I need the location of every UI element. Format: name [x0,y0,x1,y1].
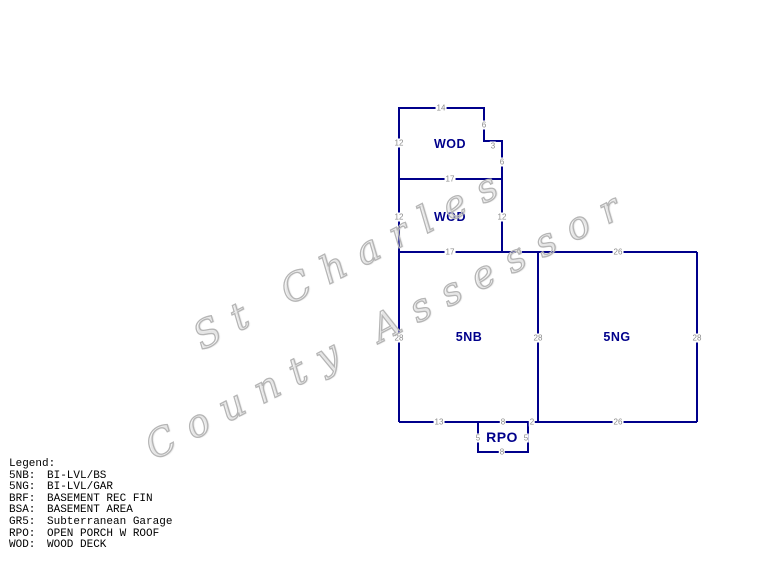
dim-main-bottom-mid: 2 [529,418,535,427]
dim-rpo-bottom: 8 [499,448,505,457]
legend-title-row: Legend: [9,459,172,471]
legend-desc: WOOD DECK [47,540,106,552]
dim-main-divider: 28 [533,334,544,343]
dim-wod1-bottom: 17 [445,175,456,184]
dim-main-top-left: 17 [445,248,456,257]
legend: Legend: 5NB: BI-LVL/BS 5NG: BI-LVL/GAR B… [9,459,172,552]
outline-path [399,108,697,452]
dim-main-bottom-left: 13 [434,418,445,427]
dim-rpo-left: 5 [475,434,481,443]
legend-desc: Subterranean Garage [47,517,172,529]
legend-row: GR5: Subterranean Garage [9,517,172,529]
area-label-rpo: RPO [486,429,518,445]
dim-main-top-mid: 6 [516,247,522,256]
dim-main-right: 28 [692,334,703,343]
legend-title: Legend: [9,459,55,471]
dim-main-top-right: 26 [613,248,624,257]
legend-code: WOD: [9,540,47,552]
dim-wod1-right-lower: 6 [499,158,505,167]
dim-main-bottom-right: 26 [613,418,624,427]
dim-wod2-right: 12 [497,213,508,222]
area-label-5ng: 5NG [603,330,630,344]
dim-rpo-top: 8 [500,418,506,427]
dim-wod2-left: 12 [394,213,405,222]
area-label-wod-upper: WOD [434,137,466,151]
legend-code: GR5: [9,517,47,529]
assessor-sketch-canvas: St Charles County Assessor 14 12 6 3 6 1… [0,0,762,568]
dim-wod1-right-upper: 6 [481,121,487,130]
dim-main-left: 28 [394,334,405,343]
area-label-5nb: 5NB [456,330,483,344]
legend-row: WOD: WOOD DECK [9,540,172,552]
dim-wod1-left: 12 [394,139,405,148]
area-label-wod-lower: WOD [434,210,466,224]
dim-wod1-top: 14 [436,104,447,113]
dim-rpo-right: 5 [523,434,529,443]
dim-wod1-step: 3 [490,142,496,151]
